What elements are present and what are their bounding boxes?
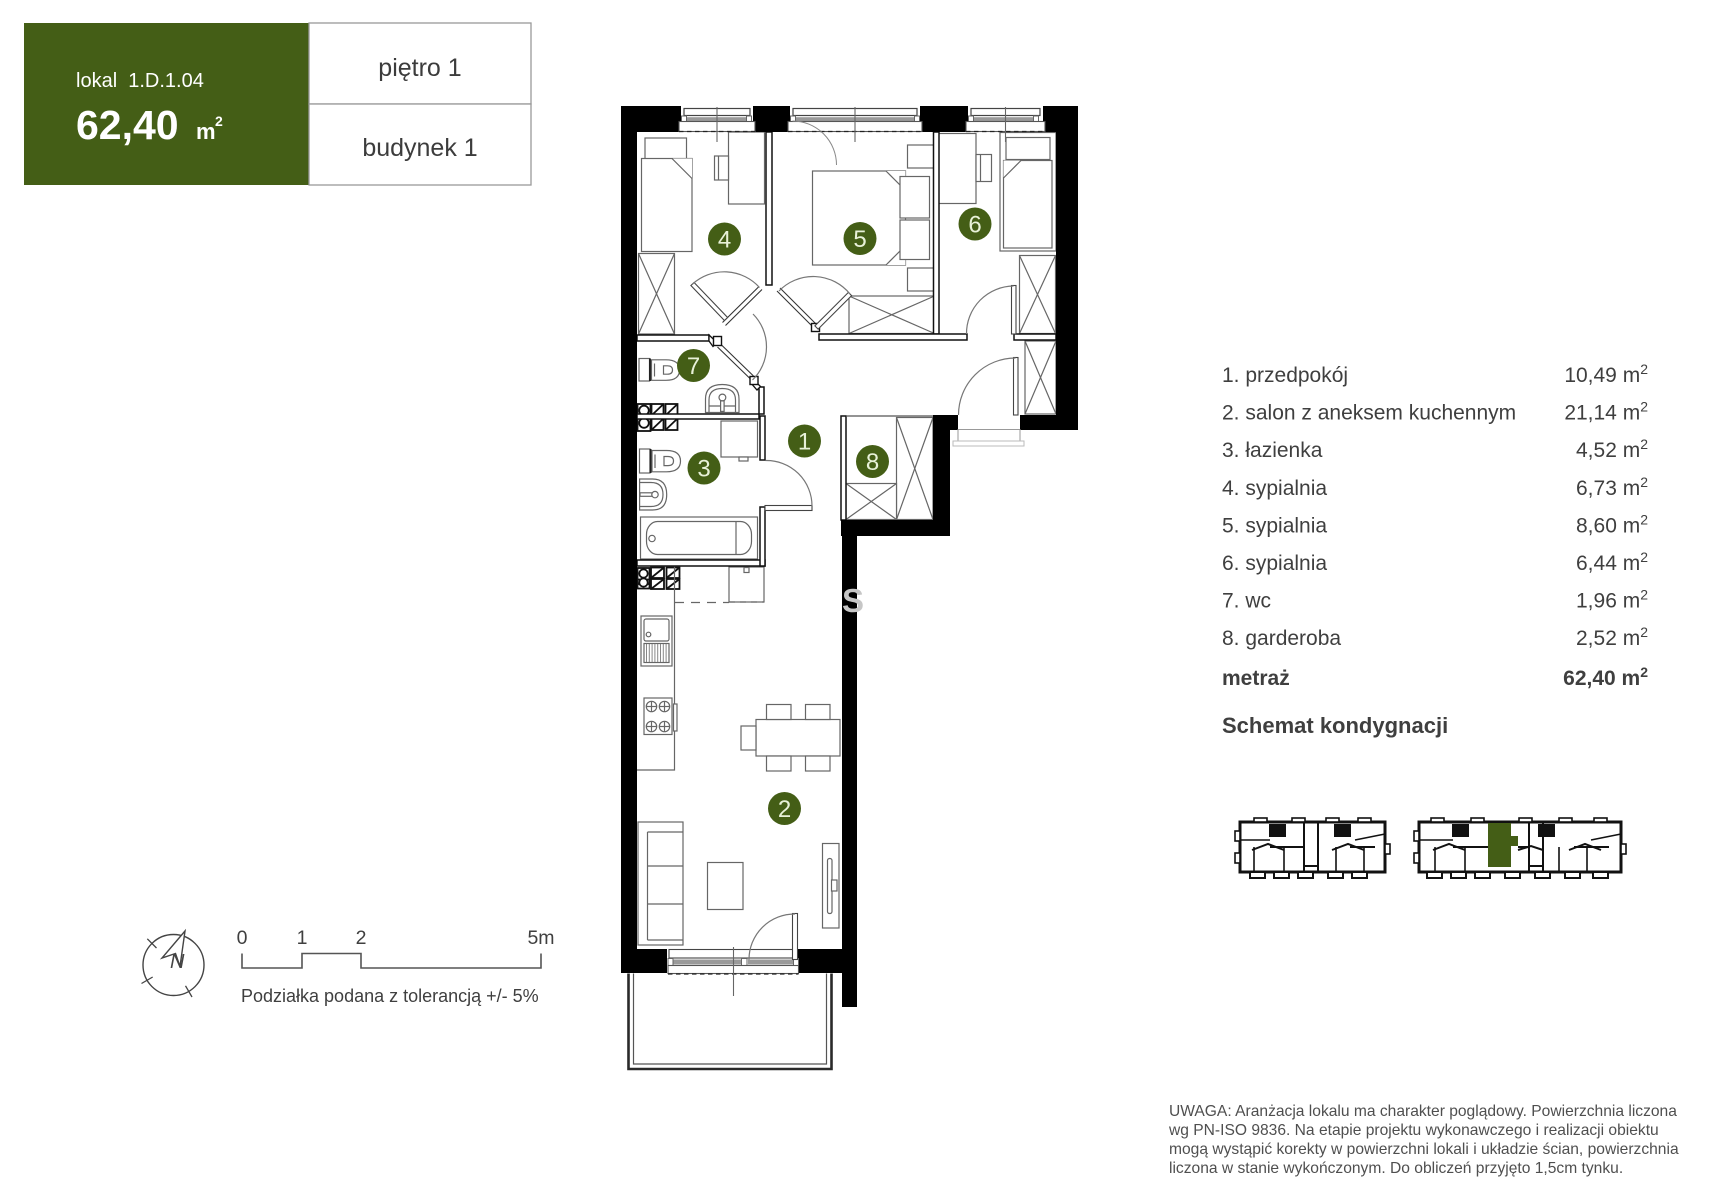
svg-text:8. garderoba: 8. garderoba (1222, 627, 1341, 650)
svg-text:6: 6 (968, 212, 981, 239)
svg-text:8,60 m2: 8,60 m2 (1576, 511, 1648, 537)
svg-text:wg PN-ISO 9836. Na etapie proj: wg PN-ISO 9836. Na etapie projektu wykon… (1168, 1122, 1659, 1139)
svg-text:6,44 m2: 6,44 m2 (1576, 549, 1648, 575)
svg-text:1,96 m2: 1,96 m2 (1576, 587, 1648, 613)
svg-text:2: 2 (215, 113, 223, 129)
svg-text:6,73 m2: 6,73 m2 (1576, 474, 1648, 500)
svg-text:4,52 m2: 4,52 m2 (1576, 436, 1648, 462)
svg-text:Podziałka podana z tolerancją: Podziałka podana z tolerancją +/- 5% (241, 986, 539, 1006)
svg-text:1: 1 (798, 429, 811, 456)
svg-text:5m: 5m (527, 927, 554, 949)
svg-text:2,52 m2: 2,52 m2 (1576, 624, 1648, 650)
svg-text:3: 3 (697, 456, 710, 483)
svg-text:m: m (196, 119, 216, 144)
svg-text:4: 4 (718, 227, 731, 254)
svg-text:7: 7 (687, 353, 700, 380)
svg-text:1: 1 (297, 927, 308, 949)
svg-text:2: 2 (356, 927, 367, 949)
svg-text:piętro 1: piętro 1 (378, 54, 461, 82)
svg-text:6. sypialnia: 6. sypialnia (1222, 552, 1327, 575)
svg-text:0: 0 (237, 927, 248, 949)
svg-text:liczona w stanie wykończonym.: liczona w stanie wykończonym. Do oblicze… (1169, 1160, 1623, 1177)
svg-text:S: S (842, 582, 864, 619)
svg-text:62,40 m2: 62,40 m2 (1563, 664, 1648, 690)
svg-text:metraż: metraż (1222, 667, 1290, 690)
svg-text:10,49 m2: 10,49 m2 (1564, 361, 1648, 387)
svg-text:N: N (170, 951, 185, 973)
svg-text:4. sypialnia: 4. sypialnia (1222, 477, 1327, 500)
svg-text:Schemat kondygnacji: Schemat kondygnacji (1222, 713, 1448, 738)
svg-text:3. łazienka: 3. łazienka (1222, 439, 1323, 462)
svg-text:lokal 1.D.1.04: lokal 1.D.1.04 (76, 70, 204, 92)
svg-text:5. sypialnia: 5. sypialnia (1222, 514, 1327, 537)
svg-text:62,40: 62,40 (76, 102, 179, 148)
svg-text:2. salon z aneksem kuchennym: 2. salon z aneksem kuchennym (1222, 402, 1516, 425)
svg-text:budynek 1: budynek 1 (362, 134, 477, 162)
svg-text:5: 5 (853, 226, 866, 253)
svg-text:21,14 m2: 21,14 m2 (1564, 399, 1648, 425)
svg-text:1. przedpokój: 1. przedpokój (1222, 364, 1348, 387)
svg-text:UWAGA: Aranżacja lokalu ma cha: UWAGA: Aranżacja lokalu ma charakter pog… (1169, 1103, 1677, 1120)
svg-text:7. wc: 7. wc (1222, 590, 1271, 613)
svg-text:mogą wystąpić korekty w powier: mogą wystąpić korekty w powierzchni loka… (1169, 1141, 1679, 1158)
svg-text:2: 2 (778, 796, 791, 823)
svg-text:8: 8 (866, 449, 879, 476)
